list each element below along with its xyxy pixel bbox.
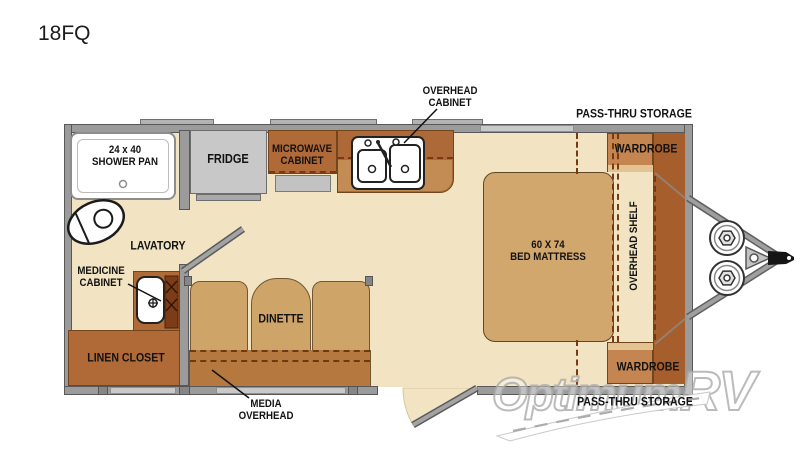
media-overhead-dash <box>190 350 370 362</box>
wardrobe-bottom-label: WARDROBE <box>617 360 680 373</box>
entry-door <box>403 388 477 425</box>
medicine-cabinet-callout: MEDICINE CABINET <box>77 265 124 289</box>
wardrobe-top-lip <box>608 165 653 172</box>
model-title: 18FQ <box>38 22 91 46</box>
counter-overhead-dash <box>338 157 453 159</box>
bed-label: 60 X 74 BED MATTRESS <box>510 239 586 263</box>
lavatory-label: LAVATORY <box>130 239 185 252</box>
fridge-vent <box>196 194 261 201</box>
media-overhead-callout: MEDIA OVERHEAD <box>239 398 294 422</box>
window-bottom-2 <box>216 387 346 394</box>
coupler-icon <box>746 247 794 269</box>
dinette-post-left <box>184 276 192 286</box>
pass-thru-top-label: PASS-THRU STORAGE <box>576 107 692 120</box>
shower-label: 24 x 40 SHOWER PAN <box>92 144 158 168</box>
pass-thru-dash-top <box>576 133 578 174</box>
wardrobe-bottom-lip <box>608 343 653 350</box>
propane-tank-icon <box>710 221 744 255</box>
wall-joint-3 <box>348 386 358 395</box>
wall-shower-fridge <box>179 130 190 210</box>
microwave-step <box>275 175 331 192</box>
overhead-shelf-label: OVERHEAD SHELF <box>628 201 640 290</box>
microwave-overhead-dash <box>269 171 336 173</box>
overhead-shelf-dash-1 <box>612 133 614 342</box>
pass-thru-bottom-label: PASS-THRU STORAGE <box>577 395 693 408</box>
wall-right <box>684 124 693 395</box>
microwave-label: MICROWAVE CABINET <box>272 143 332 167</box>
vanity-cabinet <box>133 271 180 331</box>
dinette-post-right <box>365 276 373 286</box>
overhead-shelf-dash-2 <box>617 133 619 342</box>
rv-floorplan: 18FQ <box>0 0 800 465</box>
overhead-shelf-dash-3 <box>654 176 656 340</box>
linen-closet-label: LINEN CLOSET <box>87 351 164 364</box>
front-column <box>653 133 685 384</box>
wall-joint-2 <box>179 386 190 395</box>
window-bottom-1 <box>110 387 176 394</box>
window-top-bed <box>480 125 574 132</box>
wardrobe-top-label: WARDROBE <box>615 142 678 155</box>
fridge-label: FRIDGE <box>207 153 249 167</box>
overhead-cabinet-callout: OVERHEAD CABINET <box>423 85 478 109</box>
wall-joint-1 <box>98 386 108 395</box>
propane-tank-icon <box>710 261 744 295</box>
kitchen-counter <box>337 130 454 193</box>
watermark-text-2: RV <box>680 358 754 423</box>
kitchen-counter-lower <box>338 160 452 191</box>
dinette-label: DINETTE <box>258 312 303 325</box>
